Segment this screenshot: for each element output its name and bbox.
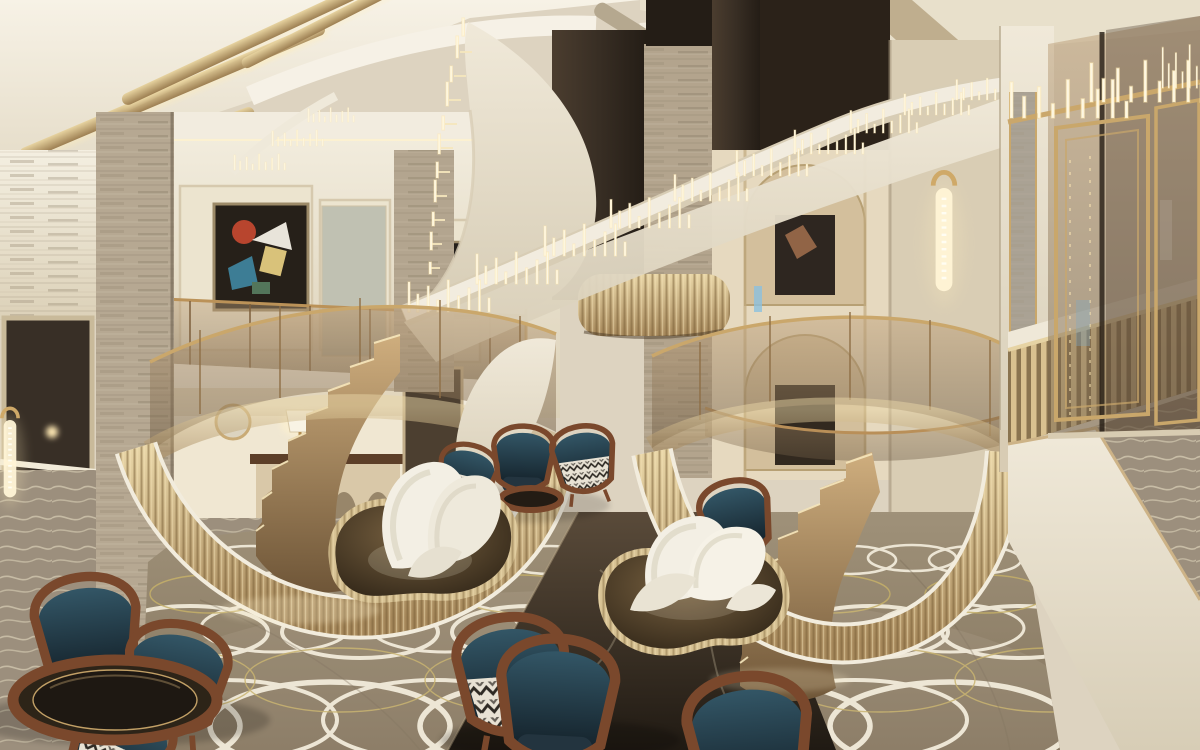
side-table bbox=[501, 488, 561, 510]
foreground-glass bbox=[1048, 16, 1200, 436]
abstract-painting-1 bbox=[214, 204, 308, 310]
atrium-scene bbox=[0, 0, 1200, 750]
atrium-render bbox=[0, 0, 1200, 750]
elevator-screen bbox=[754, 286, 762, 312]
coffee-table bbox=[13, 660, 217, 740]
